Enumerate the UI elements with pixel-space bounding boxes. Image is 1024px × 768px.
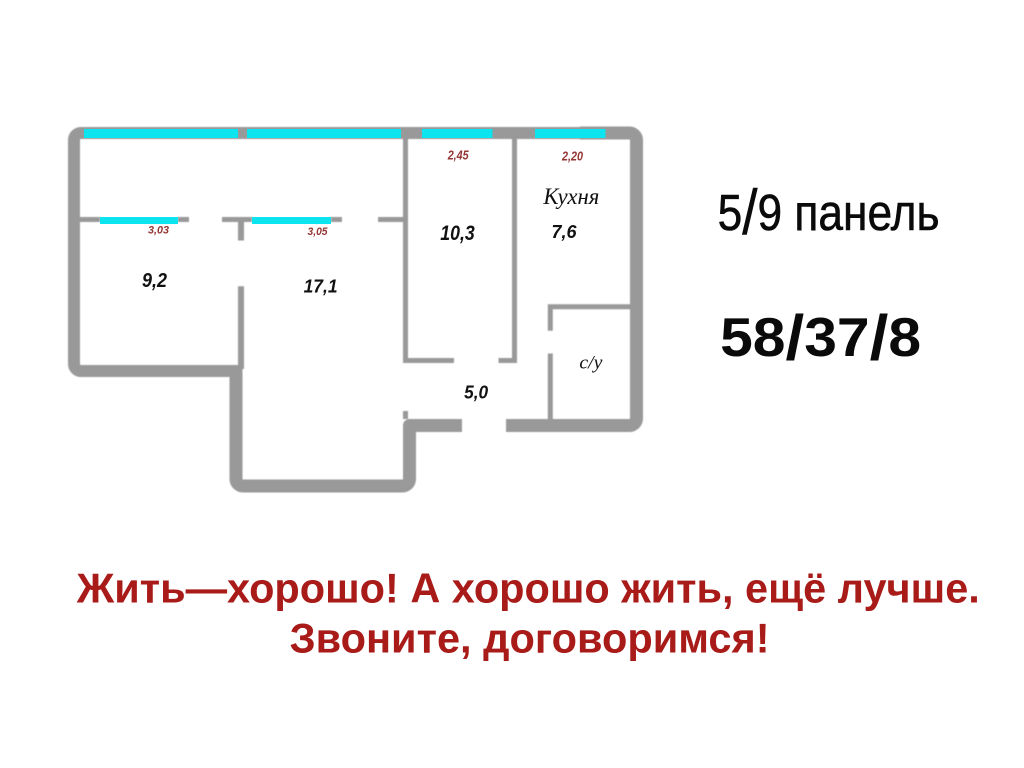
svg-text:2,20: 2,20 [561, 150, 583, 164]
svg-text:5/9 панель: 5/9 панель [718, 178, 940, 248]
svg-text:17,1: 17,1 [304, 276, 338, 297]
svg-text:9,2: 9,2 [142, 270, 167, 292]
svg-text:Кухня: Кухня [542, 184, 599, 209]
svg-text:5,0: 5,0 [464, 382, 488, 402]
svg-text:7,6: 7,6 [552, 221, 578, 242]
svg-text:3,05: 3,05 [308, 226, 329, 238]
svg-text:Жить—хорошо! А хорошо жить, ещ: Жить—хорошо! А хорошо жить, ещё лучше. [76, 565, 980, 612]
svg-text:58/37/8: 58/37/8 [720, 304, 921, 374]
svg-text:3,03: 3,03 [148, 224, 169, 236]
svg-text:2,45: 2,45 [447, 149, 470, 163]
svg-text:10,3: 10,3 [440, 222, 475, 245]
svg-text:с/у: с/у [579, 353, 603, 374]
svg-text:Звоните, договоримся!: Звоните, договоримся! [290, 615, 770, 662]
